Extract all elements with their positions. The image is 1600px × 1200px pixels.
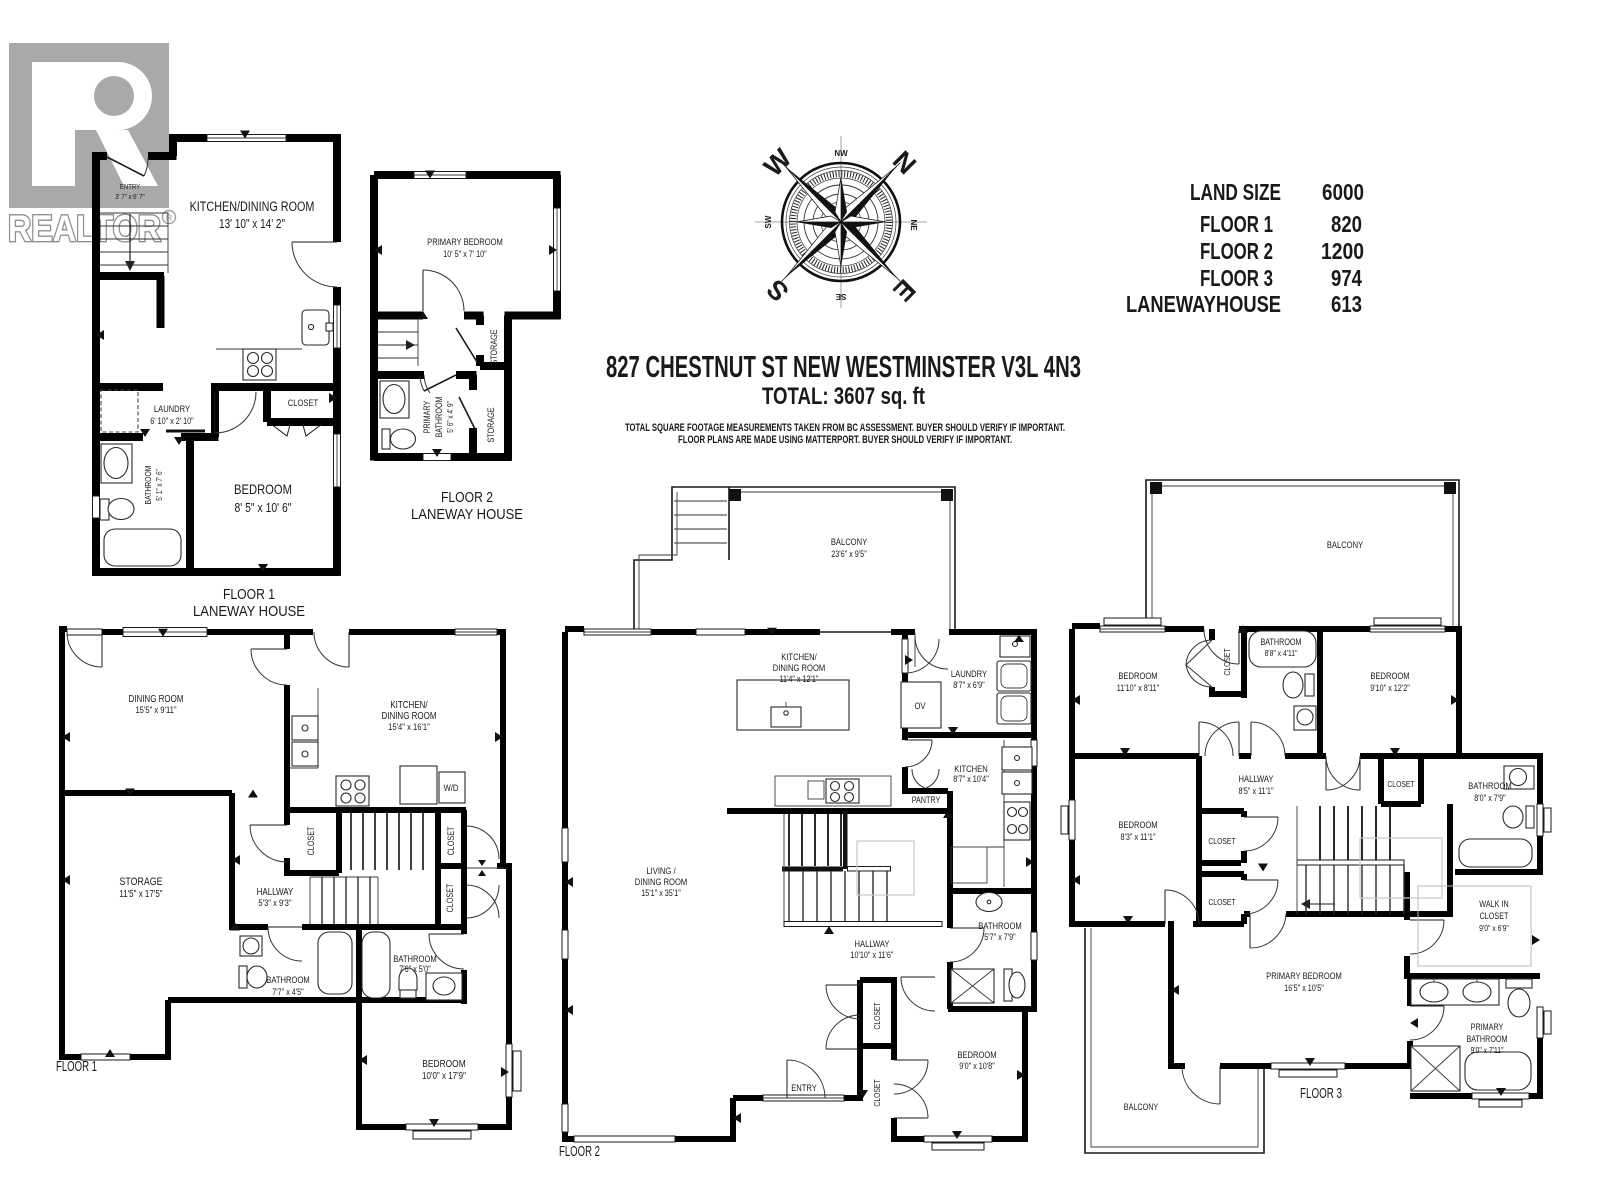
svg-text:6' 10" x 2' 10": 6' 10" x 2' 10" [150, 416, 194, 426]
svg-text:8'7" x 6'9": 8'7" x 6'9" [953, 680, 985, 690]
svg-text:DINING ROOM: DINING ROOM [773, 663, 825, 674]
svg-text:11'10" x 8'11": 11'10" x 8'11" [1117, 683, 1159, 693]
svg-text:BEDROOM: BEDROOM [1118, 671, 1157, 682]
svg-text:SE: SE [835, 292, 846, 301]
svg-text:8'7" x 10'4": 8'7" x 10'4" [953, 774, 989, 784]
svg-text:KITCHEN/: KITCHEN/ [781, 652, 817, 663]
svg-text:BATHROOM: BATHROOM [1468, 781, 1511, 792]
svg-text:8'8" x 4'11": 8'8" x 4'11" [1265, 648, 1298, 658]
svg-text:9'0" x 6'9": 9'0" x 6'9" [1479, 923, 1509, 933]
svg-text:LANEWAY HOUSE: LANEWAY HOUSE [193, 603, 305, 620]
svg-text:BATHROOM: BATHROOM [143, 466, 153, 505]
svg-text:BALCONY: BALCONY [1327, 540, 1364, 551]
svg-text:CLOSET: CLOSET [446, 826, 456, 855]
svg-text:PANTRY: PANTRY [912, 795, 941, 805]
svg-text:820: 820 [1331, 211, 1362, 237]
svg-text:BALCONY: BALCONY [831, 537, 868, 548]
svg-text:BEDROOM: BEDROOM [234, 481, 292, 497]
svg-text:10'10" x 11'6": 10'10" x 11'6" [851, 950, 894, 960]
svg-text:5' 1" x 7' 6": 5' 1" x 7' 6" [155, 469, 164, 501]
svg-text:BEDROOM: BEDROOM [1370, 671, 1409, 682]
svg-text:CLOSET: CLOSET [1480, 911, 1509, 921]
svg-text:PRIMARY: PRIMARY [1471, 1022, 1504, 1032]
svg-text:KITCHEN/: KITCHEN/ [390, 700, 427, 711]
svg-text:8'3" x 11'1": 8'3" x 11'1" [1121, 832, 1156, 842]
svg-text:6000: 6000 [1322, 179, 1364, 205]
svg-text:5'3" x 9'3": 5'3" x 9'3" [258, 898, 291, 909]
svg-text:7'7" x 4'5": 7'7" x 4'5" [272, 987, 304, 997]
svg-text:LAUNDRY: LAUNDRY [154, 404, 191, 415]
svg-text:LANEWAY HOUSE: LANEWAY HOUSE [411, 506, 523, 523]
svg-text:CLOSET: CLOSET [1387, 779, 1414, 789]
svg-text:BATHROOM: BATHROOM [1466, 1034, 1507, 1044]
svg-text:NE: NE [909, 219, 918, 231]
svg-text:FLOOR 1: FLOOR 1 [1200, 211, 1273, 237]
svg-text:15'4" x 16'1": 15'4" x 16'1" [388, 722, 430, 733]
svg-text:ENTRY: ENTRY [120, 182, 140, 191]
svg-text:PRIMARY: PRIMARY [422, 401, 432, 434]
svg-text:FLOOR PLANS ARE MADE USING MAT: FLOOR PLANS ARE MADE USING MATTERPORT. B… [678, 434, 1012, 446]
svg-text:8'0" x 7'9": 8'0" x 7'9" [1474, 793, 1506, 803]
svg-text:CLOSET: CLOSET [872, 1002, 882, 1029]
svg-text:8' 5" x 10' 6": 8' 5" x 10' 6" [235, 500, 292, 515]
svg-text:HALLWAY: HALLWAY [1239, 774, 1274, 785]
svg-text:DINING ROOM: DINING ROOM [381, 711, 436, 722]
svg-text:BEDROOM: BEDROOM [957, 1050, 996, 1061]
svg-text:W/D: W/D [444, 783, 459, 794]
svg-text:LAND SIZE: LAND SIZE [1190, 179, 1281, 205]
svg-text:LAUNDRY: LAUNDRY [951, 669, 988, 680]
svg-text:CLOSET: CLOSET [445, 883, 455, 912]
svg-text:613: 613 [1331, 291, 1362, 317]
svg-text:FLOOR 1: FLOOR 1 [56, 1059, 97, 1075]
svg-text:KITCHEN/DINING ROOM: KITCHEN/DINING ROOM [190, 199, 315, 214]
svg-text:CLOSET: CLOSET [1222, 648, 1232, 675]
svg-text:STORAGE: STORAGE [489, 329, 499, 364]
svg-text:3' 7" x 6' 7": 3' 7" x 6' 7" [115, 192, 145, 201]
svg-text:ENTRY: ENTRY [791, 1083, 817, 1094]
svg-text:11'4" x 12'1": 11'4" x 12'1" [780, 674, 819, 684]
svg-text:13' 10" x 14' 2": 13' 10" x 14' 2" [219, 217, 285, 231]
svg-text:DINING ROOM: DINING ROOM [635, 877, 687, 888]
svg-text:BATHROOM: BATHROOM [1260, 637, 1301, 647]
svg-text:FLOOR 2: FLOOR 2 [441, 489, 493, 506]
svg-text:REALTOR: REALTOR [8, 208, 161, 249]
svg-text:5' 6" x 4' 9": 5' 6" x 4' 9" [446, 401, 455, 433]
svg-text:CLOSET: CLOSET [1208, 836, 1235, 846]
svg-text:8'5" x 11'1": 8'5" x 11'1" [1239, 786, 1274, 796]
svg-text:BEDROOM: BEDROOM [422, 1058, 465, 1070]
svg-text:16'5" x 10'5": 16'5" x 10'5" [1284, 983, 1324, 993]
svg-text:CLOSET: CLOSET [1208, 897, 1235, 907]
svg-text:NW: NW [834, 149, 848, 158]
svg-text:OV: OV [915, 701, 927, 712]
svg-text:FLOOR 3: FLOOR 3 [1200, 265, 1273, 291]
svg-text:PRIMARY BEDROOM: PRIMARY BEDROOM [1266, 971, 1342, 982]
svg-text:7'6" x 5'0": 7'6" x 5'0" [399, 964, 431, 974]
svg-text:9'0" x 10'8": 9'0" x 10'8" [959, 1061, 995, 1071]
svg-text:WALK IN: WALK IN [1479, 899, 1508, 909]
svg-text:9'10" x 12'2": 9'10" x 12'2" [1370, 683, 1410, 693]
svg-text:15'1" x 35'1": 15'1" x 35'1" [641, 888, 681, 898]
svg-text:HALLWAY: HALLWAY [257, 887, 294, 898]
svg-text:SW: SW [764, 215, 773, 228]
svg-text:FLOOR 2: FLOOR 2 [559, 1144, 600, 1160]
svg-text:BATHROOM: BATHROOM [266, 975, 309, 986]
svg-text:CLOSET: CLOSET [872, 1079, 882, 1106]
svg-text:R: R [166, 213, 173, 223]
svg-text:DINING ROOM: DINING ROOM [128, 694, 183, 705]
svg-text:BALCONY: BALCONY [1124, 1102, 1158, 1112]
svg-text:TOTAL: 3607 sq. ft: TOTAL: 3607 sq. ft [762, 383, 925, 410]
svg-text:10'0" x 17'9": 10'0" x 17'9" [422, 1071, 466, 1082]
svg-text:5'7" x 7'9": 5'7" x 7'9" [984, 932, 1016, 942]
svg-text:CLOSET: CLOSET [306, 826, 316, 855]
svg-text:23'6" x 9'5": 23'6" x 9'5" [831, 549, 867, 559]
svg-text:STORAGE: STORAGE [486, 407, 496, 442]
svg-text:CLOSET: CLOSET [288, 398, 319, 409]
svg-text:PRIMARY BEDROOM: PRIMARY BEDROOM [427, 237, 503, 248]
svg-text:LANEWAYHOUSE: LANEWAYHOUSE [1126, 291, 1281, 317]
svg-text:FLOOR 2: FLOOR 2 [1200, 238, 1273, 264]
svg-text:BATHROOM: BATHROOM [978, 921, 1021, 932]
svg-text:974: 974 [1331, 265, 1362, 291]
svg-text:1200: 1200 [1321, 238, 1364, 264]
svg-text:BEDROOM: BEDROOM [1118, 820, 1157, 831]
svg-text:TOTAL SQUARE FOOTAGE MEASUREME: TOTAL SQUARE FOOTAGE MEASUREMENTS TAKEN … [625, 422, 1065, 434]
svg-text:HALLWAY: HALLWAY [855, 939, 890, 950]
svg-text:BATHROOM: BATHROOM [434, 396, 444, 437]
svg-text:STORAGE: STORAGE [120, 876, 163, 888]
svg-text:LIVING /: LIVING / [646, 866, 675, 877]
svg-text:827 CHESTNUT ST NEW WESTMINSTE: 827 CHESTNUT ST NEW WESTMINSTER V3L 4N3 [606, 349, 1081, 384]
svg-text:10' 5" x 7' 10": 10' 5" x 7' 10" [443, 249, 487, 259]
svg-text:9'0" x 7'11": 9'0" x 7'11" [1471, 1045, 1504, 1055]
svg-text:FLOOR 1: FLOOR 1 [223, 586, 275, 603]
svg-text:FLOOR 3: FLOOR 3 [1300, 1086, 1342, 1102]
svg-text:11'5" x 17'5": 11'5" x 17'5" [119, 889, 163, 900]
svg-text:15'5" x 9'11": 15'5" x 9'11" [135, 705, 176, 716]
